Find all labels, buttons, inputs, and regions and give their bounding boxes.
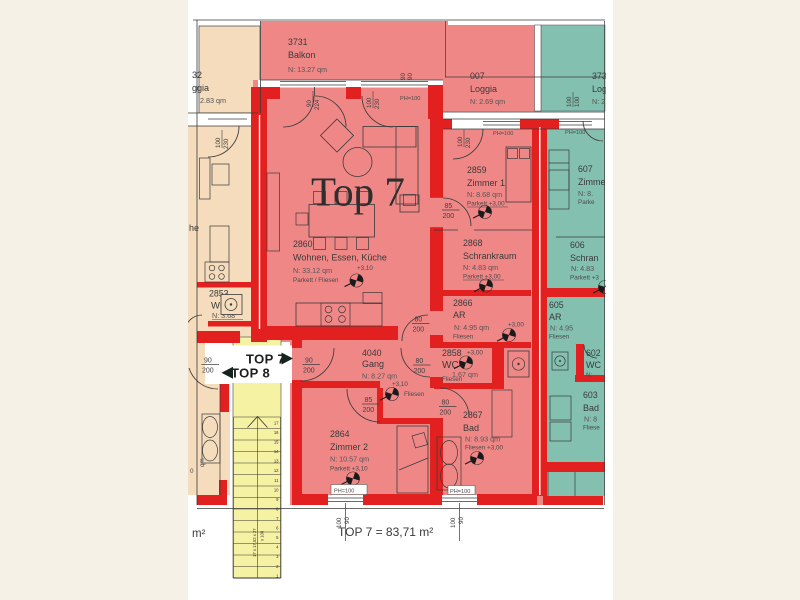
svg-text:230: 230 bbox=[223, 138, 230, 149]
svg-text:200: 200 bbox=[202, 368, 214, 375]
svg-text:qm: qm bbox=[199, 458, 206, 467]
svg-text:2868: 2868 bbox=[463, 238, 483, 248]
svg-text:Parkett / Fliesen: Parkett / Fliesen bbox=[293, 277, 339, 284]
svg-text:90: 90 bbox=[305, 358, 313, 365]
svg-text:2864: 2864 bbox=[330, 429, 350, 439]
svg-text:2860: 2860 bbox=[293, 239, 313, 249]
svg-text:85: 85 bbox=[365, 397, 373, 404]
svg-text:PH=100: PH=100 bbox=[450, 489, 470, 495]
svg-text:200: 200 bbox=[363, 407, 375, 414]
svg-text:80: 80 bbox=[442, 400, 450, 407]
svg-text:+3,00: +3,00 bbox=[508, 322, 524, 329]
svg-text:Parkett +3,10: Parkett +3,10 bbox=[330, 466, 368, 473]
svg-text:Log: Log bbox=[592, 84, 607, 94]
svg-text:80: 80 bbox=[416, 358, 424, 365]
svg-text:Top 7: Top 7 bbox=[311, 169, 405, 215]
svg-text:17: 17 bbox=[274, 421, 279, 426]
svg-text:230: 230 bbox=[465, 137, 472, 148]
svg-text:2866: 2866 bbox=[453, 298, 473, 308]
svg-text:200: 200 bbox=[303, 368, 315, 375]
svg-text:Fliesen +3,00: Fliesen +3,00 bbox=[465, 445, 503, 452]
svg-text:2.83 qm: 2.83 qm bbox=[200, 96, 226, 105]
svg-text:3731: 3731 bbox=[288, 37, 308, 47]
svg-text:N:: N: bbox=[586, 372, 593, 379]
svg-text:85: 85 bbox=[445, 203, 453, 210]
svg-text:ggia: ggia bbox=[192, 83, 209, 93]
svg-text:100: 100 bbox=[457, 136, 464, 147]
svg-text:TOP 7: TOP 7 bbox=[246, 352, 285, 367]
svg-text:15: 15 bbox=[274, 440, 279, 445]
svg-text:606: 606 bbox=[570, 240, 585, 250]
svg-text:PH=100: PH=100 bbox=[400, 96, 420, 102]
svg-text:200: 200 bbox=[443, 213, 455, 220]
svg-text:2859: 2859 bbox=[467, 165, 487, 175]
svg-text:200: 200 bbox=[413, 327, 425, 334]
svg-text:100: 100 bbox=[574, 96, 581, 107]
svg-text:N: 4.83 qm: N: 4.83 qm bbox=[463, 263, 498, 272]
svg-text:WC: WC bbox=[586, 360, 601, 370]
svg-text:224: 224 bbox=[314, 99, 321, 110]
svg-text:N: 8.93 qm: N: 8.93 qm bbox=[465, 435, 500, 444]
svg-text:200: 200 bbox=[414, 368, 426, 375]
svg-text:100: 100 bbox=[566, 96, 573, 107]
svg-text:Zimme: Zimme bbox=[578, 177, 606, 187]
svg-text:Bad: Bad bbox=[463, 423, 479, 433]
svg-text:100: 100 bbox=[215, 137, 222, 148]
svg-text:Schran: Schran bbox=[570, 253, 599, 263]
svg-text:Fliese: Fliese bbox=[583, 425, 600, 432]
svg-text:Loggia: Loggia bbox=[470, 84, 497, 94]
svg-text:PH=100: PH=100 bbox=[334, 489, 354, 495]
svg-text:x 100: x 100 bbox=[260, 530, 265, 541]
svg-text:N: 2: N: 2 bbox=[592, 97, 605, 106]
svg-text:N: 33.12 qm: N: 33.12 qm bbox=[293, 266, 332, 275]
svg-text:N: 2.69 qm: N: 2.69 qm bbox=[470, 97, 505, 106]
svg-text:Parkett +3,00: Parkett +3,00 bbox=[463, 274, 501, 281]
svg-text:N: 8.27 qm: N: 8.27 qm bbox=[362, 372, 397, 381]
svg-text:90: 90 bbox=[400, 73, 407, 80]
svg-text:Balkon: Balkon bbox=[288, 50, 316, 60]
svg-text:16: 16 bbox=[274, 430, 279, 435]
svg-text:N: 8.68 qm: N: 8.68 qm bbox=[467, 190, 502, 199]
svg-text:Bad: Bad bbox=[583, 403, 599, 413]
svg-text:Fliesen: Fliesen bbox=[442, 376, 463, 383]
svg-text:14: 14 bbox=[274, 449, 279, 454]
svg-text:N: 4.95: N: 4.95 bbox=[550, 324, 573, 333]
svg-text:602: 602 bbox=[586, 348, 601, 358]
svg-text:100: 100 bbox=[450, 517, 457, 528]
svg-text:TOP 8: TOP 8 bbox=[231, 366, 270, 381]
svg-text:Schrankraum: Schrankraum bbox=[463, 251, 517, 261]
svg-text:90: 90 bbox=[407, 73, 414, 80]
svg-text:Gang: Gang bbox=[362, 359, 384, 369]
svg-text:4040: 4040 bbox=[362, 348, 382, 358]
svg-text:32: 32 bbox=[192, 70, 202, 80]
svg-text:80: 80 bbox=[415, 317, 423, 324]
svg-text:he: he bbox=[189, 223, 199, 233]
svg-text:+3,10: +3,10 bbox=[357, 265, 373, 272]
svg-text:PH=100: PH=100 bbox=[493, 131, 513, 137]
svg-text:TOP 7 = 83,71 m²: TOP 7 = 83,71 m² bbox=[338, 525, 433, 539]
svg-text:Wohnen, Essen, Küche: Wohnen, Essen, Küche bbox=[293, 253, 387, 263]
svg-text:13: 13 bbox=[274, 459, 279, 464]
svg-text:Zimmer 2: Zimmer 2 bbox=[330, 442, 368, 452]
svg-text:AR: AR bbox=[453, 310, 466, 320]
svg-text:PH=100: PH=100 bbox=[565, 130, 585, 136]
svg-text:AR: AR bbox=[549, 312, 562, 322]
svg-text:Zimmer 1: Zimmer 1 bbox=[467, 178, 505, 188]
svg-text:Parkett +3,00: Parkett +3,00 bbox=[467, 201, 505, 208]
svg-text:100: 100 bbox=[366, 97, 373, 108]
svg-text:200: 200 bbox=[440, 410, 452, 417]
svg-text:Fliesen: Fliesen bbox=[549, 334, 570, 341]
svg-text:Fliesen: Fliesen bbox=[453, 334, 474, 341]
svg-text:230: 230 bbox=[374, 98, 381, 109]
svg-text:007: 007 bbox=[470, 71, 485, 81]
svg-text:N: 13.27 qm: N: 13.27 qm bbox=[288, 65, 327, 74]
svg-text:+3,00: +3,00 bbox=[467, 350, 483, 357]
svg-text:90: 90 bbox=[204, 358, 212, 365]
svg-text:605: 605 bbox=[549, 300, 564, 310]
svg-text:90: 90 bbox=[306, 100, 313, 107]
svg-text:11: 11 bbox=[274, 478, 279, 483]
svg-text:N: 8.: N: 8. bbox=[578, 189, 593, 198]
svg-text:+3,10: +3,10 bbox=[392, 381, 408, 388]
svg-text:373: 373 bbox=[592, 71, 607, 81]
svg-text:Fliesen: Fliesen bbox=[404, 391, 425, 398]
svg-text:m²: m² bbox=[192, 528, 206, 540]
svg-text:Parke: Parke bbox=[578, 199, 595, 206]
svg-text:N: 8: N: 8 bbox=[584, 415, 597, 424]
svg-text:2858: 2858 bbox=[442, 348, 462, 358]
svg-text:607: 607 bbox=[578, 164, 593, 174]
svg-text:N: 10.57 qm: N: 10.57 qm bbox=[330, 455, 369, 464]
svg-text:2867: 2867 bbox=[463, 410, 483, 420]
svg-text:90: 90 bbox=[458, 517, 465, 524]
svg-text:Parkett +3: Parkett +3 bbox=[570, 275, 599, 282]
svg-text:17 x 17,52 x 27: 17 x 17,52 x 27 bbox=[252, 528, 257, 557]
svg-text:603: 603 bbox=[583, 390, 598, 400]
svg-text:N: 4.83: N: 4.83 bbox=[571, 264, 594, 273]
svg-text:10: 10 bbox=[274, 487, 279, 492]
svg-text:12: 12 bbox=[274, 468, 279, 473]
svg-text:N: 4.95 qm: N: 4.95 qm bbox=[454, 323, 489, 332]
svg-text:90: 90 bbox=[344, 517, 351, 524]
svg-text:0: 0 bbox=[190, 468, 194, 475]
